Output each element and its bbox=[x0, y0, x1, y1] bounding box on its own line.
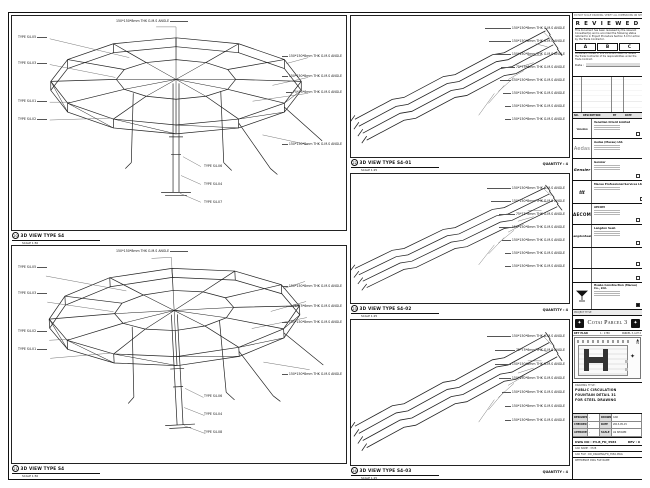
callout: 150*150*8mm THK G.M.S ANGLE bbox=[116, 20, 189, 23]
callout: TYPE S4-05 bbox=[18, 266, 48, 269]
drawing-title-line: PUBLIC CIRCULATION bbox=[575, 388, 640, 392]
callout: 75*75*6mm THK G.M.S ANGLE bbox=[498, 213, 565, 216]
callout-text: 150*150*8mm THK G.M.S ANGLE bbox=[512, 79, 565, 82]
north-arrow-icon: ▲ N bbox=[636, 339, 639, 346]
callout: TYPE S4-02 bbox=[18, 118, 48, 121]
callout: 150*150*8mm THK G.M.S ANGLE bbox=[486, 187, 565, 190]
panel-title: 3D VIEW TYPE S4-01 bbox=[360, 160, 412, 165]
leader-line bbox=[170, 21, 188, 22]
leader-line bbox=[37, 63, 47, 64]
langdon-seah-logo: LangdonSeah bbox=[573, 225, 592, 247]
callout: 150*150*8mm THK G.M.S ANGLE bbox=[281, 55, 342, 58]
callout-text: 150*150*8mm THK G.M.S ANGLE bbox=[512, 335, 565, 338]
address-lines bbox=[594, 210, 640, 214]
venetian-logo: Venetian bbox=[573, 119, 592, 138]
canopy-wireframe-drawing bbox=[12, 16, 346, 230]
callout: TYPE S4-06 bbox=[204, 165, 222, 168]
callout: 150*150*8mm THK G.M.S ANGLE bbox=[502, 92, 565, 95]
callout-text: 150*150*8mm THK G.M.S ANGLE bbox=[512, 363, 565, 366]
company-name: Macau Professional Services Ltd. bbox=[594, 182, 642, 186]
title-block: DO NOT SCALE DRAWING. VERIFY ALL DIMENSI… bbox=[572, 13, 642, 479]
leader-line bbox=[37, 349, 47, 350]
panel-3d-view-s4-bottom: 150*150*8mm THK G.M.S ANGLE TYPE S4-05 T… bbox=[11, 245, 347, 477]
key-plan: KEY PLAN 1 : 1750 PARCEL 3, LOT 2 ✦ ▲ N bbox=[573, 331, 642, 383]
detail-number-bubble: 24 bbox=[351, 467, 358, 474]
leader-line bbox=[282, 56, 288, 57]
drawing-title-box: DRAWING TITLE : PUBLIC CIRCULATION FOUNT… bbox=[573, 383, 642, 414]
callout-text: 150*150*8mm THK G.M.S ANGLE bbox=[512, 40, 565, 43]
callout-text: 150*150*8mm THK G.M.S ANGLE bbox=[512, 53, 565, 56]
drawing-title-label: DRAWING TITLE : bbox=[575, 384, 640, 387]
drawn-value: CAD bbox=[612, 414, 642, 422]
callout: 150*150*8mm THK G.M.S ANGLE bbox=[501, 239, 565, 242]
callout-text: 150*150*8mm THK G.M.S ANGLE bbox=[512, 265, 565, 268]
callout-text: 150*150*8mm THK G.M.S ANGLE bbox=[289, 321, 342, 324]
rev-col-desc: DESCRIPTION bbox=[582, 114, 612, 117]
callout-text: 150*150*8mm THK G.M.S ANGLE bbox=[512, 187, 565, 190]
leader-line bbox=[37, 331, 47, 332]
leader-line bbox=[37, 267, 47, 268]
callout-text: TYPE S4-05 bbox=[18, 266, 36, 269]
address-lines bbox=[594, 125, 640, 129]
checkbox-mark bbox=[640, 197, 642, 201]
dwg-no-label: DWG NO : bbox=[575, 440, 592, 444]
status-option-a: A bbox=[575, 43, 596, 51]
callout: 150*150*8mm THK G.M.S ANGLE bbox=[488, 40, 565, 43]
date-value: 2013-05-15 bbox=[612, 422, 642, 430]
callout-text: 150*150*8mm THK G.M.S ANGLE bbox=[289, 285, 342, 288]
callout-text: TYPE S4-06 bbox=[204, 165, 222, 168]
empty-logo-cell bbox=[573, 248, 592, 268]
panel-label: 213D VIEW TYPE S4 SCALE 1:50 bbox=[12, 465, 100, 477]
callout: TYPE S4-06 bbox=[204, 395, 222, 398]
callout-text: 75*75*6mm THK G.M.S ANGLE bbox=[293, 305, 342, 308]
callout: 150*150*8mm THK G.M.S ANGLE bbox=[499, 79, 565, 82]
revision-table: NO. DESCRIPTION BY DATE bbox=[573, 77, 642, 119]
leader-line bbox=[286, 92, 292, 93]
panel-label: 223D VIEW TYPE S4-01 SCALE 1:25 bbox=[351, 159, 439, 171]
detail-number-bubble: 21 bbox=[12, 465, 19, 472]
callout-text: 150*150*8mm THK G.M.S ANGLE bbox=[289, 143, 342, 146]
address-lines bbox=[594, 291, 640, 295]
aedas-logo: Aedas bbox=[573, 139, 592, 158]
panel-label: 203D VIEW TYPE S4 SCALE 1:50 bbox=[12, 232, 100, 244]
quantity-note: QUANTITY : 4 bbox=[543, 162, 568, 166]
leader-line bbox=[37, 119, 47, 120]
callout: TYPE S4-08 bbox=[204, 431, 222, 434]
canopy-wireframe-drawing bbox=[12, 246, 346, 463]
address-lines bbox=[594, 165, 640, 169]
consultant-row-gensler: Gensler Gensler bbox=[573, 159, 642, 181]
callout-text: 150*150*8mm THK G.M.S ANGLE bbox=[512, 252, 565, 255]
callout: 150*150*8mm THK G.M.S ANGLE bbox=[504, 252, 565, 255]
panel-scale: SCALE 1:25 bbox=[361, 168, 439, 172]
drawn-label: DRAWN bbox=[600, 414, 612, 422]
panel-label: 243D VIEW TYPE S4-03 SCALE 1:25 bbox=[351, 467, 439, 479]
callout-text: TYPE S4-03 bbox=[18, 62, 36, 65]
approved-value: - bbox=[588, 429, 600, 437]
checkbox-mark bbox=[636, 241, 640, 245]
drawing-sheet: 150*150*8mm THK G.M.S ANGLE TYPE S4-05 T… bbox=[8, 12, 642, 480]
stamp-body-text: This document has been reviewed by the r… bbox=[575, 29, 640, 43]
callout: 150*150*8mm THK G.M.S ANGLE bbox=[281, 75, 342, 78]
callout-text: TYPE S4-07 bbox=[204, 201, 222, 204]
reference-dwg-row: REFERENCE DWG FILE NAME bbox=[573, 458, 642, 464]
callout-text: TYPE S4-01 bbox=[18, 100, 36, 103]
status-option-b: B bbox=[597, 43, 618, 51]
callout: 150*150*8mm THK G.M.S ANGLE bbox=[281, 373, 342, 376]
callout-text: 150*150*8mm THK G.M.S ANGLE bbox=[289, 373, 342, 376]
quantity-note: QUANTITY : 4 bbox=[543, 308, 568, 312]
scale-label: SCALE bbox=[600, 429, 612, 437]
panel-scale: SCALE 1:50 bbox=[22, 474, 100, 478]
checkbox-mark bbox=[636, 218, 640, 222]
rev-col-date: DATE bbox=[624, 114, 642, 117]
date-label: DATE bbox=[600, 422, 612, 430]
consultant-row-empty-1 bbox=[573, 248, 642, 269]
project-emblem-icon: ✦ bbox=[631, 319, 640, 328]
callout: 75*75*6mm THK G.M.S ANGLE bbox=[500, 66, 565, 69]
stamp-status-options: A B C bbox=[575, 43, 640, 51]
detail-number-bubble: 20 bbox=[12, 232, 19, 239]
leader-line bbox=[282, 76, 288, 77]
consultant-row-langdon-seah: LangdonSeah Langdon Seah bbox=[573, 225, 642, 248]
callout-text: TYPE S4-04 bbox=[204, 413, 222, 416]
panel-border: 150*150*8mm THK G.M.S ANGLE TYPE S4-05 T… bbox=[11, 245, 347, 464]
panel-border: 150*150*8mm THK G.M.S ANGLE 150*150*8mm … bbox=[350, 173, 570, 304]
checked-value: - bbox=[588, 422, 600, 430]
revision-header: NO. DESCRIPTION BY DATE bbox=[573, 112, 642, 118]
callout: TYPE S4-03 bbox=[18, 62, 48, 65]
rev-value: 0 bbox=[638, 440, 640, 444]
callout-text: 150*150*8mm THK G.M.S ANGLE bbox=[512, 105, 565, 108]
callout-text: TYPE S4-08 bbox=[204, 431, 222, 434]
key-plan-map: ✦ ▲ N bbox=[574, 337, 641, 379]
map-block bbox=[625, 360, 628, 363]
contractor-row: Hsabo Construction (Macau) Co., Ltd. bbox=[573, 283, 642, 310]
goblet-icon bbox=[576, 290, 588, 302]
consultant-row-aecom: AECOM AECOM bbox=[573, 204, 642, 225]
panel-border: 150*150*8mm THK G.M.S ANGLE 75*75*6mm TH… bbox=[350, 319, 570, 466]
map-block bbox=[625, 368, 628, 371]
callout: 150*150*8mm THK G.M.S ANGLE bbox=[501, 391, 565, 394]
leader-line bbox=[170, 251, 188, 252]
project-emblem-icon: ✦ bbox=[575, 319, 584, 328]
callout: TYPE S4-01 bbox=[18, 100, 48, 103]
address-lines bbox=[594, 231, 640, 235]
callout: 150*150*8mm THK G.M.S ANGLE bbox=[504, 105, 565, 108]
review-stamp: R E V I E W E D This document has been r… bbox=[573, 19, 642, 77]
drawing-title-line: FOR STEEL DRAWING bbox=[575, 398, 640, 402]
address-lines bbox=[594, 187, 642, 190]
date-label: Date : bbox=[575, 63, 584, 67]
consultant-row-mps: ttt Macau Professional Services Ltd. bbox=[573, 181, 642, 204]
consultant-row-empty-2 bbox=[573, 269, 642, 283]
designed-value: - bbox=[588, 414, 600, 422]
callout-text: 75*75*6mm THK G.M.S ANGLE bbox=[516, 66, 565, 69]
callout-text: 75*75*6mm THK G.M.S ANGLE bbox=[516, 213, 565, 216]
callout: TYPE S4-04 bbox=[204, 183, 222, 186]
panel-title: 3D VIEW TYPE S4 bbox=[21, 233, 65, 238]
panel-3d-view-s4-top: 150*150*8mm THK G.M.S ANGLE TYPE S4-05 T… bbox=[11, 15, 347, 244]
callout-text: 150*150*8mm THK G.M.S ANGLE bbox=[512, 27, 565, 30]
callout: 150*150*8mm THK G.M.S ANGLE bbox=[281, 143, 342, 146]
callout: TYPE S4-01 bbox=[18, 348, 48, 351]
company-name: Gensler bbox=[594, 160, 640, 164]
drawing-number-row: DWG NO : P3-B_FD_3584 REV : 0 bbox=[573, 438, 642, 446]
callout: 75*75*6mm THK G.M.S ANGLE bbox=[285, 305, 342, 308]
scale-value: AS SHOWN bbox=[612, 429, 642, 437]
key-plan-label: KEY PLAN bbox=[574, 332, 588, 335]
panel-3d-view-s4-01: 150*150*8mm THK G.M.S ANGLE 150*150*8mm … bbox=[350, 15, 570, 171]
gensler-logo: Gensler bbox=[573, 159, 592, 180]
address-lines bbox=[594, 145, 640, 149]
callout-text: 150*150*8mm THK G.M.S ANGLE bbox=[512, 200, 565, 203]
tube-bundle-drawing bbox=[351, 16, 569, 157]
callout-text: TYPE S4-05 bbox=[18, 36, 36, 39]
empty-logo-cell bbox=[573, 269, 592, 282]
detail-number-bubble: 22 bbox=[351, 159, 358, 166]
company-name: Langdon Seah bbox=[594, 226, 640, 230]
stamp-title: R E V I E W E D bbox=[575, 20, 640, 29]
leader-line bbox=[282, 322, 288, 323]
callout: 150*150*8mm THK G.M.S ANGLE bbox=[281, 285, 342, 288]
callout: 150*150*8mm THK G.M.S ANGLE bbox=[492, 53, 565, 56]
panel-border: 150*150*8mm THK G.M.S ANGLE TYPE S4-05 T… bbox=[11, 15, 347, 231]
designed-label: DESIGNED bbox=[573, 414, 588, 422]
callout: 150*150*8mm THK G.M.S ANGLE bbox=[504, 118, 565, 121]
approval-table: DESIGNED - DRAWN CAD CHECKED - DATE 2013… bbox=[573, 414, 642, 438]
rev-label: REV : bbox=[628, 440, 637, 444]
callout: 75*75*6mm THK G.M.S ANGLE bbox=[494, 349, 565, 352]
checkbox-mark bbox=[636, 132, 640, 136]
leader-line bbox=[282, 374, 288, 375]
panel-scale: SCALE 1:25 bbox=[361, 476, 439, 480]
project-title-row: ✦ Cotai Parcel 3 ✦ bbox=[573, 316, 642, 331]
callout: 75*75*6mm THK G.M.S ANGLE bbox=[285, 91, 342, 94]
rev-col-by: BY bbox=[612, 114, 624, 117]
panel-scale: SCALE 1:50 bbox=[22, 241, 100, 245]
panel-title: 3D VIEW TYPE S4-03 bbox=[360, 468, 412, 473]
callout: 150*150*8mm THK G.M.S ANGLE bbox=[281, 321, 342, 324]
leader-line bbox=[37, 101, 47, 102]
callout-text: TYPE S4-03 bbox=[18, 292, 36, 295]
road-dots bbox=[577, 340, 631, 343]
callout-text: TYPE S4-02 bbox=[18, 118, 36, 121]
callout-text: TYPE S4-01 bbox=[18, 348, 36, 351]
detail-number-bubble: 23 bbox=[351, 305, 358, 312]
key-plan-parcel: PARCEL 3, LOT 2 bbox=[622, 332, 641, 335]
callout: 150*150*8mm THK G.M.S ANGLE bbox=[504, 265, 565, 268]
leader-line bbox=[282, 286, 288, 287]
callout: 150*150*8mm THK G.M.S ANGLE bbox=[116, 250, 189, 253]
callout-text: TYPE S4-04 bbox=[204, 183, 222, 186]
callout-text: 150*150*8mm THK G.M.S ANGLE bbox=[512, 377, 565, 380]
date-fill-line bbox=[586, 63, 640, 67]
panel-scale: SCALE 1:25 bbox=[361, 314, 439, 318]
drawing-title-line: FOUNTAIN DETAIL 31 bbox=[575, 393, 640, 397]
callout-text: 150*150*8mm THK G.M.S ANGLE bbox=[512, 419, 565, 422]
callout: 150*150*8mm THK G.M.S ANGLE bbox=[486, 335, 565, 338]
stamp-disclaimer: Consultant review of this document does … bbox=[575, 52, 640, 62]
callout-text: 75*75*6mm THK G.M.S ANGLE bbox=[293, 91, 342, 94]
checkbox-mark-filled bbox=[636, 303, 640, 307]
dwg-no-value: P3-B_FD_3584 bbox=[593, 440, 617, 444]
panel-border: 150*150*8mm THK G.M.S ANGLE 150*150*8mm … bbox=[350, 15, 570, 158]
company-name: Aedas (Macau) Ltd. bbox=[594, 140, 640, 144]
callout-text: 150*150*8mm THK G.M.S ANGLE bbox=[512, 405, 565, 408]
callout: 150*150*8mm THK G.M.S ANGLE bbox=[484, 27, 565, 30]
mps-logo: ttt bbox=[573, 181, 592, 203]
callout-text: 150*150*8mm THK G.M.S ANGLE bbox=[512, 391, 565, 394]
checkbox-mark bbox=[636, 276, 640, 280]
checkbox-mark bbox=[636, 174, 640, 178]
callout: 150*150*8mm THK G.M.S ANGLE bbox=[498, 226, 565, 229]
rev-col-no: NO. bbox=[573, 114, 582, 117]
checked-label: CHECKED bbox=[573, 422, 588, 430]
callout: 150*150*8mm THK G.M.S ANGLE bbox=[490, 200, 565, 203]
leader-line bbox=[37, 37, 47, 38]
callout-text: 150*150*8mm THK G.M.S ANGLE bbox=[289, 75, 342, 78]
panel-title: 3D VIEW TYPE S4 bbox=[21, 466, 65, 471]
callout-text: 150*150*8mm THK G.M.S ANGLE bbox=[512, 226, 565, 229]
key-plan-scale: 1 : 1750 bbox=[600, 332, 610, 335]
approved-label: APPROVED bbox=[573, 429, 588, 437]
callout: TYPE S4-03 bbox=[18, 292, 48, 295]
callout: TYPE S4-02 bbox=[18, 330, 48, 333]
aecom-logo: AECOM bbox=[573, 204, 592, 224]
callout: 150*150*8mm THK G.M.S ANGLE bbox=[504, 419, 565, 422]
leader-line bbox=[282, 144, 288, 145]
callout-text: 150*150*8mm THK G.M.S ANGLE bbox=[116, 20, 169, 23]
consultant-row-aedas: Aedas Aedas (Macau) Ltd. bbox=[573, 139, 642, 159]
panel-3d-view-s4-02: 150*150*8mm THK G.M.S ANGLE 150*150*8mm … bbox=[350, 173, 570, 317]
company-name: Venetian Orient Limited bbox=[594, 120, 640, 124]
north-letter: N bbox=[636, 342, 639, 345]
project-name: Cotai Parcel 3 bbox=[588, 320, 628, 326]
status-option-c: C bbox=[619, 43, 640, 51]
panel-3d-view-s4-03: 150*150*8mm THK G.M.S ANGLE 75*75*6mm TH… bbox=[350, 319, 570, 479]
company-name: AECOM bbox=[594, 205, 640, 209]
callout: TYPE S4-05 bbox=[18, 36, 48, 39]
callout-text: 150*150*8mm THK G.M.S ANGLE bbox=[116, 250, 169, 253]
compass-star-icon: ✦ bbox=[630, 354, 635, 360]
callout-text: TYPE S4-02 bbox=[18, 330, 36, 333]
contractor-logo-icon bbox=[573, 283, 592, 309]
callout-text: 75*75*6mm THK G.M.S ANGLE bbox=[516, 349, 565, 352]
leader-line bbox=[286, 306, 292, 307]
consultant-row-venetian: Venetian Venetian Orient Limited bbox=[573, 119, 642, 139]
callout: TYPE S4-04 bbox=[204, 413, 222, 416]
panel-label: 233D VIEW TYPE S4-02 SCALE 1:25 bbox=[351, 305, 439, 317]
callout: TYPE S4-07 bbox=[204, 201, 222, 204]
callout: 150*150*8mm THK G.M.S ANGLE bbox=[498, 377, 565, 380]
callout-text: TYPE S4-06 bbox=[204, 395, 222, 398]
checkbox-mark bbox=[636, 262, 640, 266]
company-name: Hsabo Construction (Macau) Co., Ltd. bbox=[594, 284, 640, 290]
callout: 150*150*8mm THK G.M.S ANGLE bbox=[504, 405, 565, 408]
callout-text: 150*150*8mm THK G.M.S ANGLE bbox=[512, 118, 565, 121]
leader-line bbox=[37, 293, 47, 294]
callout: 150*150*8mm THK G.M.S ANGLE bbox=[494, 363, 565, 366]
quantity-note: QUANTITY : 4 bbox=[543, 470, 568, 474]
callout-text: 150*150*8mm THK G.M.S ANGLE bbox=[289, 55, 342, 58]
callout-text: 150*150*8mm THK G.M.S ANGLE bbox=[512, 92, 565, 95]
highlighted-building-shape bbox=[584, 349, 608, 371]
key-plan-header: KEY PLAN 1 : 1750 PARCEL 3, LOT 2 bbox=[573, 331, 642, 336]
stamp-date-row: Date : bbox=[575, 63, 640, 67]
callout-text: 150*150*8mm THK G.M.S ANGLE bbox=[512, 239, 565, 242]
panel-title: 3D VIEW TYPE S4-02 bbox=[360, 306, 412, 311]
